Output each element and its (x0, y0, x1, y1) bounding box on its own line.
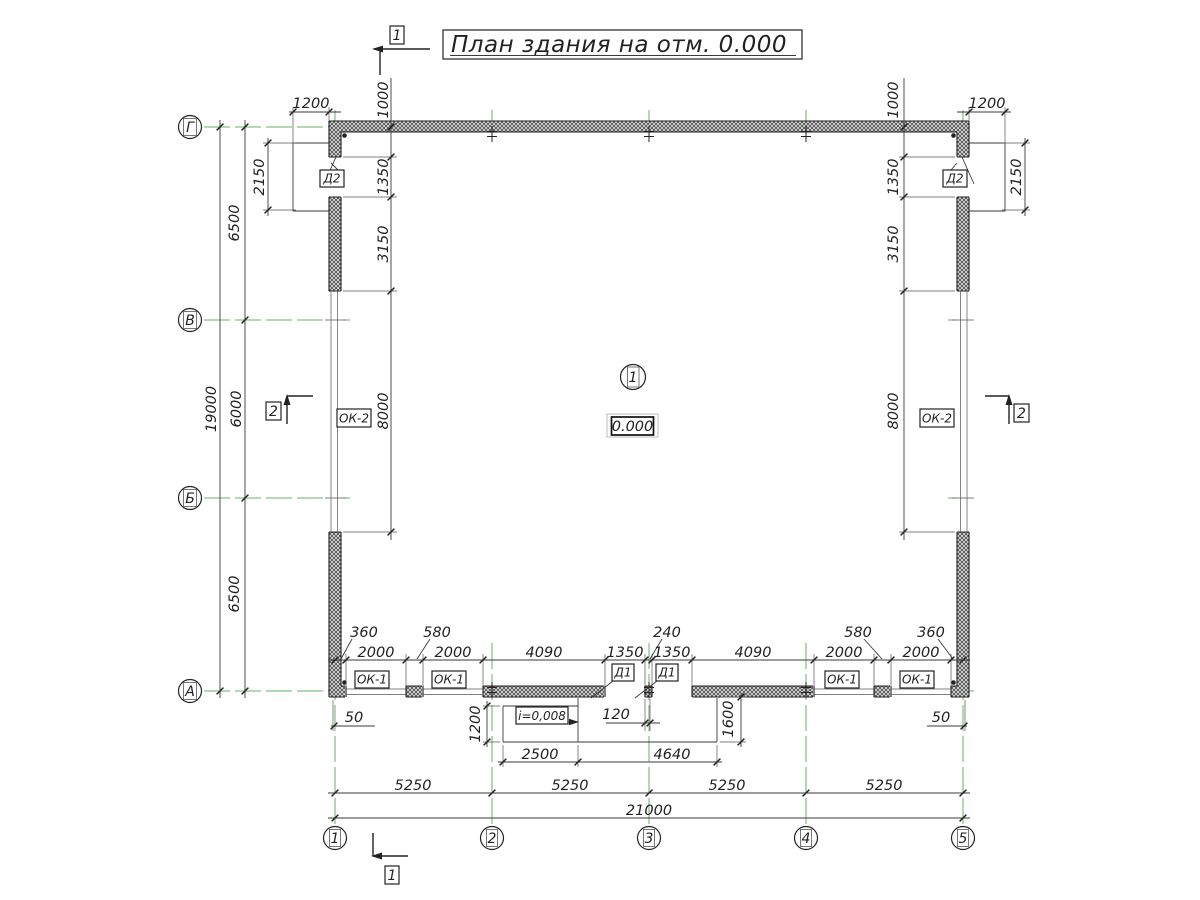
section-2-left-label: 2 (269, 404, 278, 420)
dim-span-6500-top: 6500 (227, 205, 243, 242)
axis-col-2: 2 (488, 831, 497, 847)
column-marks (342, 126, 956, 698)
dim-window-2000-1: 2000 (358, 645, 395, 661)
section-2-right-label: 2 (1017, 406, 1026, 422)
axis-row-v: В (185, 313, 195, 329)
dim-pier-4090-right: 4090 (735, 645, 772, 661)
axis-row-b: Б (185, 491, 195, 507)
dim-ramp-1200: 1200 (468, 706, 484, 743)
dim-window-2000-2: 2000 (435, 645, 472, 661)
tag-door1-left: Д1 (613, 666, 631, 680)
section-1-top-label: 1 (393, 28, 402, 44)
dim-chain-3150-left: 3150 (376, 226, 392, 263)
tag-window1-2: ОК-1 (434, 673, 464, 687)
axis-row-a: А (184, 684, 195, 700)
dim-span-6000: 6000 (229, 391, 245, 428)
axis-col-4: 4 (802, 831, 811, 847)
dim-width-total: 21000 (626, 803, 672, 819)
dim-span-6500-bottom: 6500 (227, 576, 243, 613)
dim-chain-8000-right: 8000 (886, 393, 902, 430)
dim-bay-1: 5250 (395, 778, 432, 794)
door-leaf-lines (324, 157, 974, 184)
dim-bay-2: 5250 (552, 778, 589, 794)
dim-porch-width-right: 1200 (969, 96, 1006, 112)
dim-50-right: 50 (932, 710, 950, 726)
dim-callout-580-left: 580 (423, 625, 451, 641)
dim-pier-4090-left: 4090 (526, 645, 563, 661)
tag-window2-left: ОК-2 (339, 412, 369, 426)
dim-callout-360-right: 360 (917, 625, 945, 641)
section-marks (266, 26, 1029, 884)
tag-door2-right: Д2 (945, 172, 963, 186)
dim-callout-580-right: 580 (844, 625, 872, 641)
dim-platform-4640: 4640 (654, 747, 691, 763)
dim-porch-width-left: 1200 (293, 96, 330, 112)
tag-window1-3: ОК-1 (827, 673, 857, 687)
dim-callout-240: 240 (653, 625, 681, 641)
dim-2150-right: 2150 (1009, 159, 1025, 196)
dim-window-2000-3: 2000 (826, 645, 863, 661)
room-elevation: 0.000 (612, 419, 654, 435)
axis-grid-lines (204, 110, 975, 827)
axis-row-g: Г (186, 120, 195, 136)
dim-ramp-2500: 2500 (522, 747, 559, 763)
dim-50-left: 50 (345, 710, 363, 726)
page-title: План здания на отм. 0.000 (451, 32, 787, 58)
tag-window2-right: ОК-2 (922, 412, 952, 426)
dim-chain-3150-right: 3150 (886, 226, 902, 263)
dim-2150-left: 2150 (252, 159, 268, 196)
dim-door-1350-right: 1350 (654, 645, 691, 661)
section-1-bottom-label: 1 (388, 868, 397, 884)
dim-chain-1350-right: 1350 (886, 159, 902, 196)
dim-bay-4: 5250 (866, 778, 903, 794)
tag-door1-right: Д1 (657, 666, 675, 680)
dim-1000-left: 1000 (376, 82, 392, 119)
dim-chain-1350-left: 1350 (376, 159, 392, 196)
dim-height-total: 19000 (204, 386, 220, 432)
tag-door2-left: Д2 (322, 172, 340, 186)
dim-door-1350-left: 1350 (607, 645, 644, 661)
tag-slope: i=0,008 (518, 709, 566, 723)
title-block: План здания на отм. 0.000 (443, 30, 802, 59)
window-ok2-glazing (331, 291, 967, 532)
drawing-canvas: План здания на отм. 0.000 1200 1200 360 … (0, 0, 1200, 900)
axis-circles (179, 116, 975, 850)
tag-window1-1: ОК-1 (357, 673, 387, 687)
dim-platform-1600: 1600 (721, 701, 737, 738)
dim-chain-8000-left: 8000 (376, 393, 392, 430)
slope-arrow (569, 719, 579, 725)
tag-window1-4: ОК-1 (902, 673, 932, 687)
axis-col-3: 3 (645, 831, 654, 847)
dim-bay-3: 5250 (709, 778, 746, 794)
walls (325, 121, 973, 699)
axis-col-1: 1 (331, 831, 340, 847)
dim-callout-360-left: 360 (350, 625, 378, 641)
dim-window-2000-4: 2000 (903, 645, 940, 661)
dim-1000-right: 1000 (886, 82, 902, 119)
room-number: 1 (629, 370, 638, 386)
dim-120: 120 (602, 707, 630, 723)
axis-col-5: 5 (959, 831, 968, 847)
